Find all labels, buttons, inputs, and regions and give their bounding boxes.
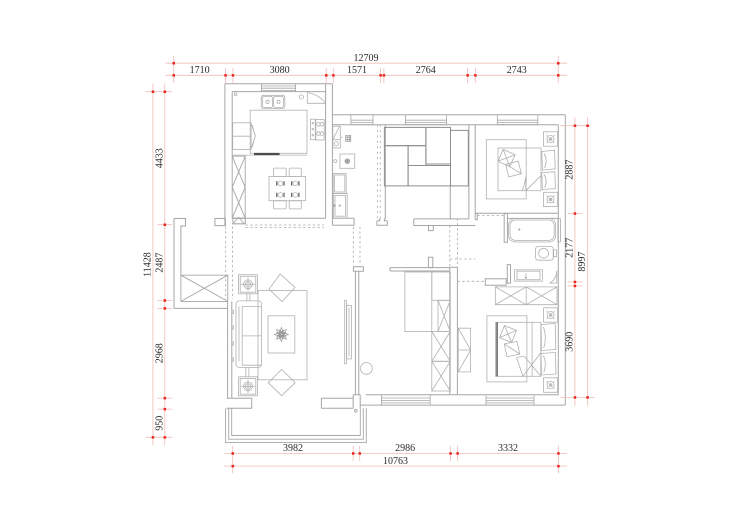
svg-text:2968: 2968	[154, 343, 165, 363]
svg-text:1571: 1571	[347, 65, 367, 76]
svg-text:12709: 12709	[354, 53, 379, 64]
svg-text:10763: 10763	[383, 456, 408, 467]
svg-text:1710: 1710	[190, 65, 210, 76]
svg-text:2743: 2743	[507, 65, 527, 76]
svg-text:8997: 8997	[577, 252, 588, 272]
svg-text:2177: 2177	[565, 238, 576, 258]
svg-text:2764: 2764	[416, 65, 436, 76]
svg-text:3982: 3982	[283, 443, 303, 454]
svg-text:950: 950	[154, 416, 165, 431]
svg-text:3690: 3690	[565, 332, 576, 352]
svg-text:3332: 3332	[498, 443, 518, 454]
svg-text:2986: 2986	[395, 443, 415, 454]
svg-text:3080: 3080	[270, 65, 290, 76]
svg-text:2887: 2887	[565, 160, 576, 180]
svg-text:11428: 11428	[142, 252, 153, 277]
svg-text:2487: 2487	[154, 253, 165, 273]
svg-text:4433: 4433	[154, 148, 165, 168]
